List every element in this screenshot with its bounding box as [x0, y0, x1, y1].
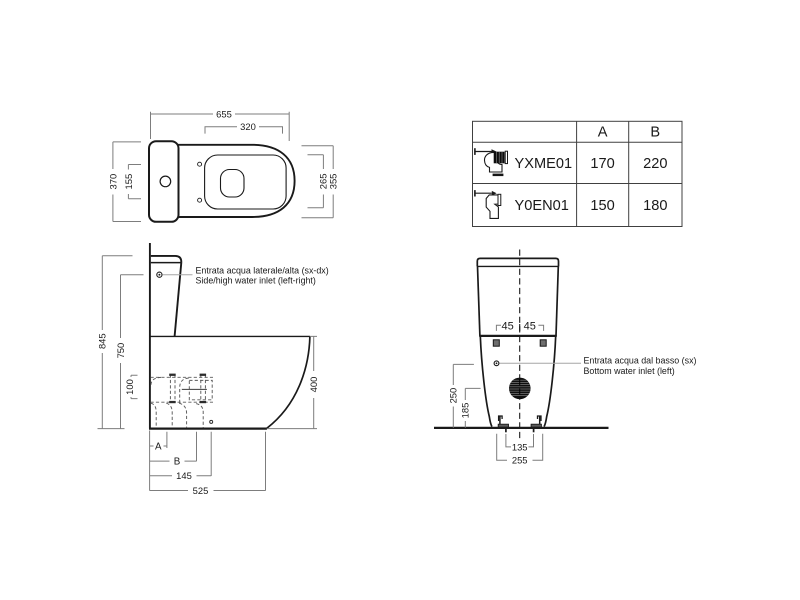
- svg-text:B: B: [174, 457, 181, 468]
- svg-text:45: 45: [501, 321, 513, 333]
- svg-text:185: 185: [460, 403, 471, 419]
- svg-text:250: 250: [448, 388, 459, 404]
- svg-text:A: A: [155, 441, 162, 452]
- svg-text:355: 355: [328, 174, 339, 190]
- svg-text:A: A: [598, 125, 608, 141]
- svg-text:655: 655: [216, 108, 232, 119]
- svg-text:YXME01: YXME01: [515, 156, 573, 172]
- svg-text:180: 180: [643, 198, 667, 214]
- svg-text:145: 145: [176, 470, 192, 481]
- svg-text:Entrata acqua dal basso (sx): Entrata acqua dal basso (sx): [584, 356, 697, 366]
- svg-text:155: 155: [123, 174, 134, 190]
- svg-text:Bottom water inlet (left): Bottom water inlet (left): [584, 366, 675, 376]
- svg-text:220: 220: [643, 156, 667, 172]
- svg-text:Side/high water inlet (left-ri: Side/high water inlet (left-right): [196, 275, 316, 285]
- svg-text:Entrata acqua laterale/alta (s: Entrata acqua laterale/alta (sx-dx): [196, 265, 329, 275]
- svg-text:100: 100: [124, 379, 135, 395]
- svg-text:255: 255: [512, 455, 528, 466]
- svg-text:Y0EN01: Y0EN01: [515, 198, 569, 214]
- svg-text:525: 525: [193, 485, 209, 496]
- svg-text:370: 370: [107, 174, 118, 190]
- svg-text:320: 320: [240, 121, 256, 132]
- svg-text:400: 400: [308, 377, 319, 393]
- svg-text:845: 845: [97, 333, 108, 349]
- svg-text:170: 170: [590, 156, 614, 172]
- svg-text:150: 150: [590, 198, 614, 214]
- svg-text:135: 135: [512, 441, 528, 452]
- svg-text:B: B: [650, 125, 660, 141]
- svg-text:45: 45: [524, 321, 536, 333]
- svg-text:750: 750: [115, 343, 126, 359]
